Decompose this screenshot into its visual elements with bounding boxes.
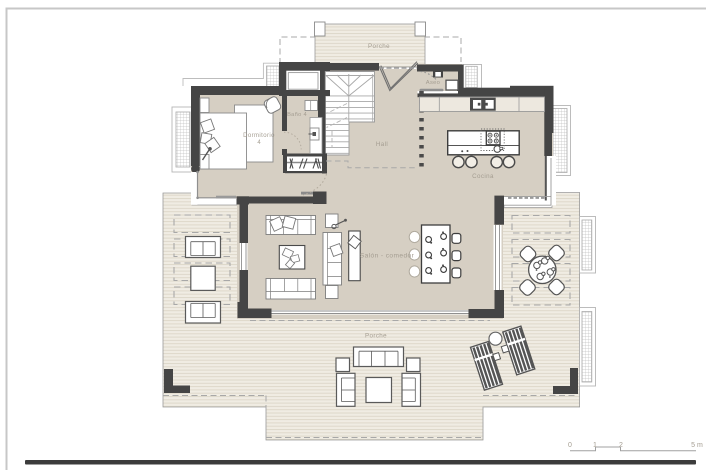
svg-text:0: 0 <box>568 442 572 449</box>
svg-text:Aseo: Aseo <box>426 80 440 86</box>
svg-text:Porche: Porche <box>365 333 387 340</box>
svg-text:Dormitorio: Dormitorio <box>243 133 275 139</box>
svg-text:5 m: 5 m <box>691 442 703 449</box>
svg-text:Baño 4: Baño 4 <box>287 112 307 118</box>
svg-text:Porche: Porche <box>368 43 390 50</box>
svg-text:2: 2 <box>619 442 623 449</box>
svg-text:Salón - comedor: Salón - comedor <box>360 253 415 260</box>
svg-text:Cocina: Cocina <box>472 173 494 180</box>
svg-text:Hall: Hall <box>376 141 388 148</box>
svg-text:1: 1 <box>593 442 597 449</box>
